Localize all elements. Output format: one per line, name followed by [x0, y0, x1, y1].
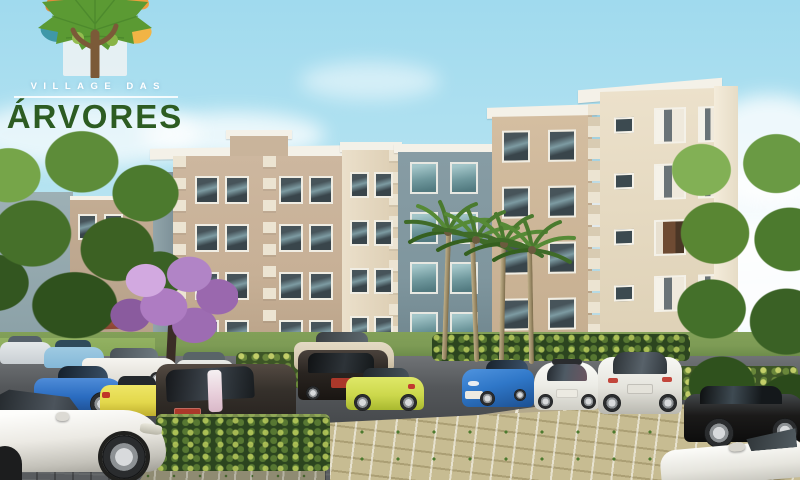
window [195, 224, 219, 252]
brand-logo: VILLAGE DAS ÁRVORES [0, 0, 200, 150]
jacaranda-tree [110, 256, 238, 358]
car-wheel [102, 435, 146, 479]
car-body [462, 369, 534, 407]
car-white-suv [598, 352, 682, 414]
side-mirror [56, 412, 69, 421]
window [502, 298, 530, 330]
window [279, 224, 303, 252]
window [225, 176, 249, 204]
logo-title: ÁRVORES [4, 98, 186, 136]
car-glass [547, 364, 587, 381]
window [548, 185, 576, 217]
car-glass [613, 352, 667, 374]
towel-on-car [207, 370, 222, 412]
window [195, 176, 219, 204]
window [450, 162, 478, 194]
taillight [662, 377, 672, 382]
window [548, 129, 576, 161]
apartment-complex-render: VILLAGE DAS ÁRVORES [0, 0, 800, 480]
window [614, 229, 634, 246]
left-building-right-facade [342, 150, 400, 356]
car-yellow-green-hatchback [346, 368, 424, 410]
car-wheel [538, 394, 553, 409]
window [548, 297, 576, 329]
headlight [468, 381, 479, 386]
window [279, 176, 303, 204]
car-wheel [514, 389, 526, 401]
car-white-fiat500 [534, 358, 600, 410]
window [309, 176, 333, 204]
logo-subtitle: VILLAGE DAS [14, 81, 176, 92]
window [614, 285, 634, 302]
taillight [608, 378, 618, 383]
license-plate [627, 384, 653, 394]
car-wheel [603, 394, 621, 412]
car-wheel [400, 394, 417, 411]
window [410, 262, 438, 294]
palm-fronds [484, 216, 580, 272]
window [350, 172, 369, 198]
window [614, 117, 634, 134]
window [350, 268, 369, 294]
window [309, 272, 333, 300]
hedge-foreground [156, 414, 330, 471]
car-wheel [354, 394, 371, 411]
car-blue-sedan [462, 360, 534, 407]
tree-logo-icon [28, 0, 162, 78]
car-wheel [306, 386, 320, 400]
car-white-coupe-foreground [0, 388, 166, 480]
window [410, 162, 438, 194]
car-wheel [581, 394, 596, 409]
car-glass [700, 386, 782, 404]
car-wheel [659, 394, 677, 412]
window [502, 130, 530, 162]
window [279, 272, 303, 300]
window [350, 220, 369, 246]
window [374, 220, 393, 246]
quoin-strip [263, 156, 276, 352]
taillight [408, 384, 415, 389]
window [614, 173, 634, 190]
window [374, 268, 393, 294]
window [309, 224, 333, 252]
cloud [300, 62, 440, 100]
window [225, 224, 249, 252]
window [374, 172, 393, 198]
car-wheel [480, 391, 495, 406]
license-plate [556, 389, 578, 398]
